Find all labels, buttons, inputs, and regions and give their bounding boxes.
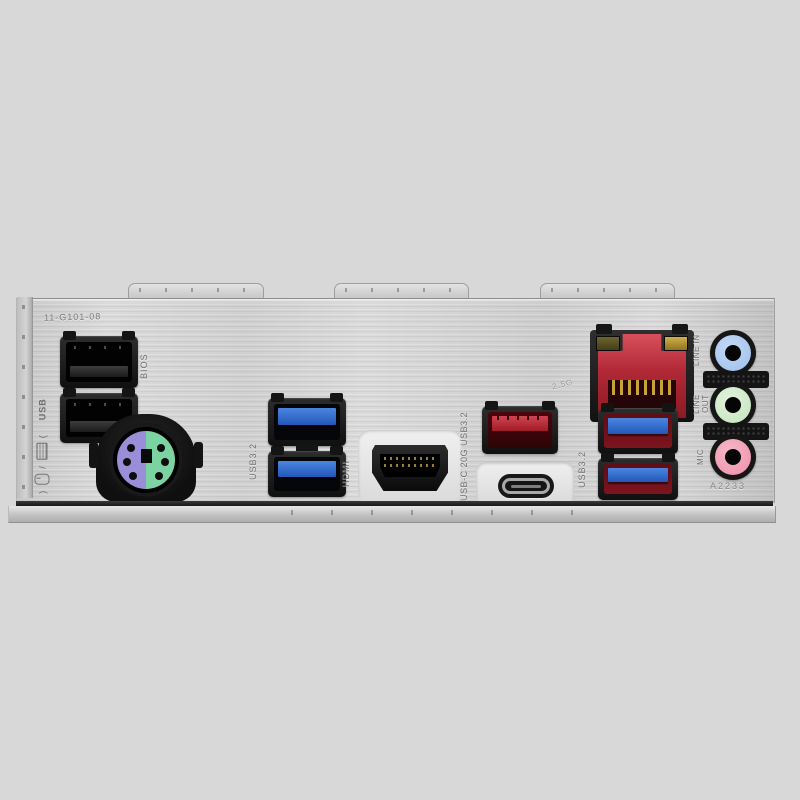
usb32-red-type-a-port <box>482 406 558 454</box>
keyboard-icon <box>37 443 48 460</box>
lip-rivet-marks <box>291 510 581 515</box>
bottom-lip <box>8 506 776 523</box>
usb32-red-pair-port-2 <box>598 458 678 500</box>
usb3-blue-tongue <box>608 418 668 434</box>
usb-opening <box>274 404 340 440</box>
usb32-red-label: USB3.2 <box>577 438 587 500</box>
hdmi-label: HDMI <box>341 450 351 498</box>
usb-contact-pins <box>74 403 124 406</box>
usb32-blue-label: USB3.2 <box>248 424 258 498</box>
ps2-pin-hole <box>157 444 165 452</box>
lan-led-left <box>596 336 620 351</box>
ps2-pin-hole <box>155 472 163 480</box>
hdmi-port <box>372 445 448 491</box>
usb32-blue-port-1 <box>268 398 346 446</box>
usb-opening <box>488 412 552 448</box>
bios-qflash-label: BIOS <box>139 338 149 394</box>
ps2-pin-hole <box>161 458 169 466</box>
ps2-pin-hole <box>123 458 131 466</box>
usb-red-tongue <box>492 416 548 431</box>
audio-line-in-jack <box>710 330 756 376</box>
usb-tongue <box>70 366 128 377</box>
ps2-pin-hole <box>127 444 135 452</box>
hdmi-pins-row <box>384 457 436 460</box>
usb3-blue-tongue <box>278 408 336 425</box>
usb3-blue-tongue <box>608 468 668 482</box>
usb32-red-pair-port-1 <box>598 408 678 454</box>
tab-rivet-marks <box>345 288 458 292</box>
usb3-blue-tongue <box>278 461 336 477</box>
ps2-combo-port <box>96 414 196 502</box>
jack-hole <box>725 397 741 413</box>
usb-contact-pins <box>74 346 124 349</box>
audio-mic-jack <box>710 434 756 480</box>
ps2-pin-hole <box>129 472 137 480</box>
usb-opening <box>274 457 340 491</box>
tab-rivet-marks <box>139 288 253 292</box>
usb32-blue-port-2 <box>268 451 346 497</box>
lan-led-right <box>664 336 688 351</box>
photo-background: 11-G101-08 A2233 2.5G ) / ( USB BIOS <box>0 0 800 800</box>
ps2-connector <box>117 431 175 489</box>
usb-opening <box>604 464 672 494</box>
hdmi-pins-row <box>384 464 436 467</box>
jack-hole <box>725 345 741 361</box>
line-out-label: LINE OUT <box>692 388 710 420</box>
etched-part-number: 11-G101-08 <box>44 311 102 322</box>
audio-line-out-jack <box>710 382 756 428</box>
ps2-key-notch <box>141 449 152 463</box>
line-in-label: LINE IN <box>692 334 701 366</box>
tab-rivet-marks <box>551 288 664 292</box>
paren-open: ( <box>37 434 47 438</box>
lan-gold-pins <box>612 380 672 395</box>
jack-hole <box>725 449 741 465</box>
usb-type-c-port <box>498 474 554 498</box>
mouse-icon <box>35 474 50 485</box>
slash-glyph: / <box>37 465 47 469</box>
usb-opening <box>604 414 672 448</box>
paren-close: ) <box>37 490 47 494</box>
usb-c-tongue <box>511 485 541 488</box>
usb-c-20g-label: USB-C 20G USB3.2 <box>459 398 469 514</box>
mic-label: MIC <box>696 442 705 472</box>
usb-opening <box>66 342 132 382</box>
usb2-port-1 <box>60 336 138 388</box>
usb-label: USB <box>37 398 47 420</box>
etched-board-code: A2233 <box>710 481 746 491</box>
